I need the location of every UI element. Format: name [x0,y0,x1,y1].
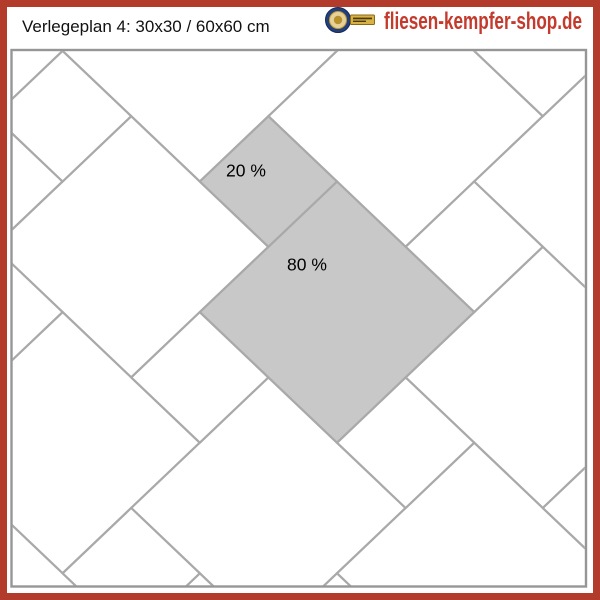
tiling-plan: 20 % 80 % [0,0,600,600]
brand-text: fliesen-kempfer-shop.de [384,8,582,35]
small-tile-share-label: 20 % [226,161,266,181]
tile-pattern [0,0,600,600]
large-tile-share-label: 80 % [287,255,327,275]
plan-title: Verlegeplan 4: 30x30 / 60x60 cm [22,17,270,37]
verlegeplan-page: Verlegeplan 4: 30x30 / 60x60 cm fliesen-… [0,0,600,600]
header-bar: Verlegeplan 4: 30x30 / 60x60 cm fliesen-… [0,0,600,48]
shop-seal-icon [324,4,378,36]
brand-logo: fliesen-kempfer-shop.de [382,5,586,37]
